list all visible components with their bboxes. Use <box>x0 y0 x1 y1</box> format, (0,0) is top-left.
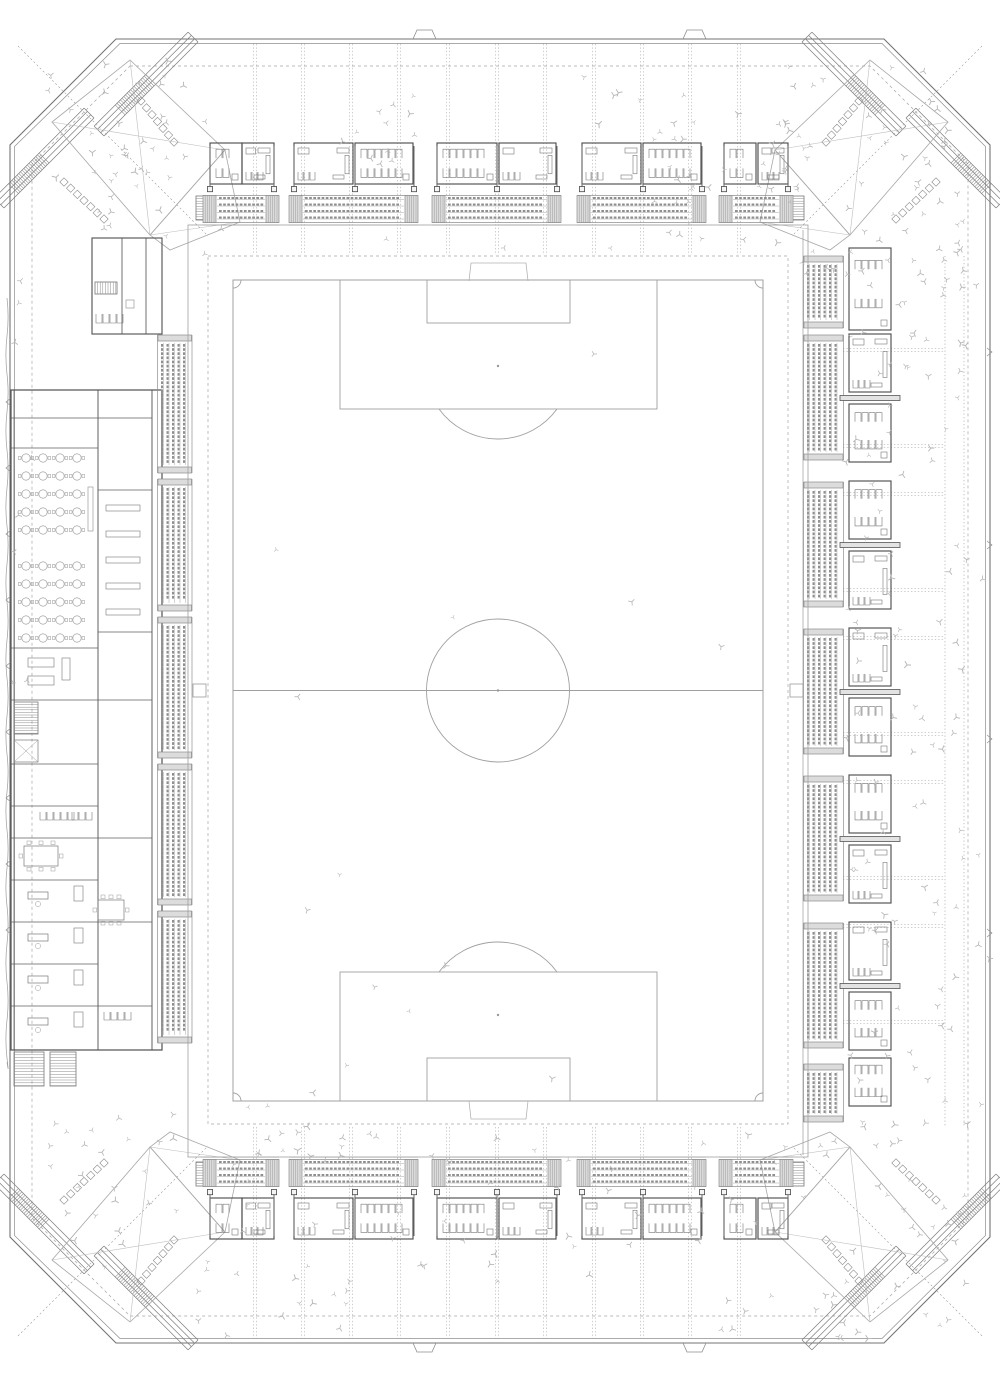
plan-canvas <box>0 0 1000 1382</box>
stadium-floor-plan <box>0 0 1000 1382</box>
